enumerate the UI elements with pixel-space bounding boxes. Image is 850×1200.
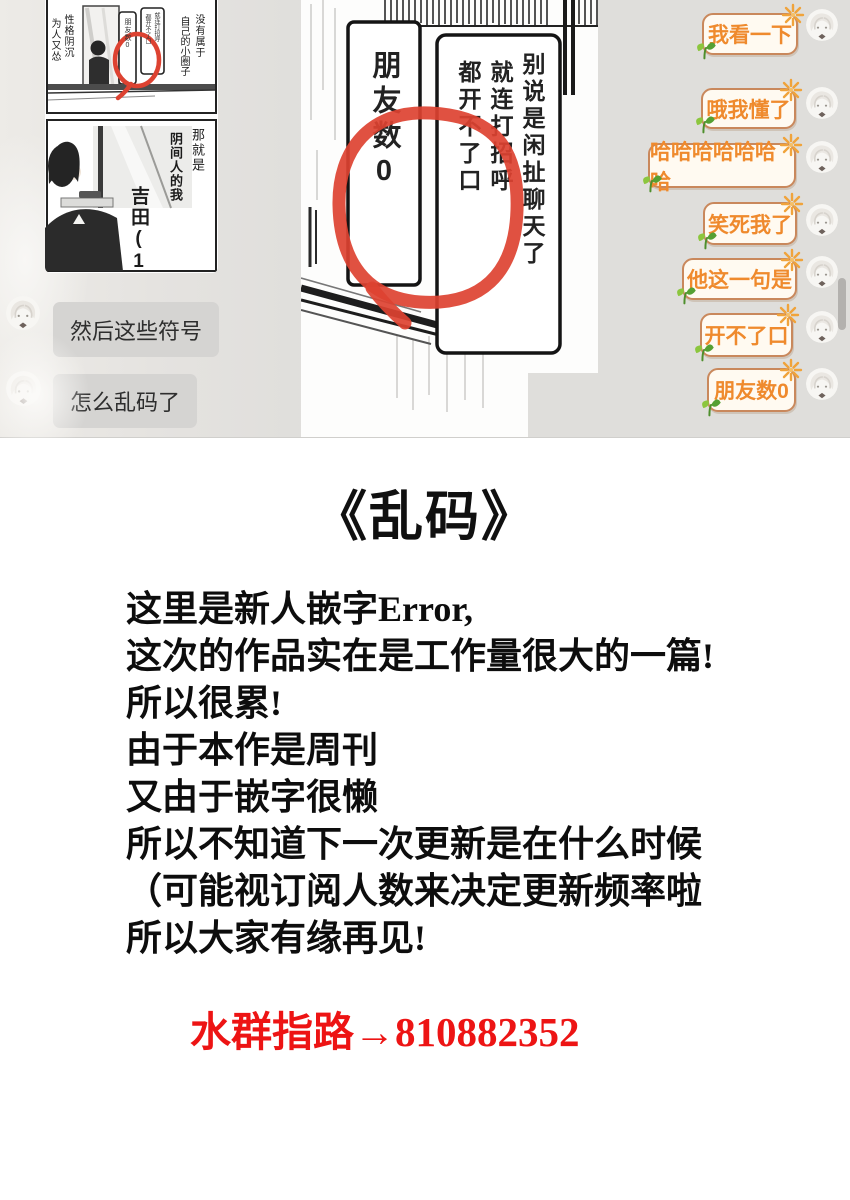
right-message-bubble[interactable]: 哈哈哈哈哈哈哈 <box>648 143 796 188</box>
credits-line: （可能视订阅人数来决定更新频率啦 <box>126 868 766 915</box>
right-avatar[interactable] <box>806 256 838 288</box>
sprout-icon <box>691 108 718 135</box>
right-message-bubble[interactable]: 哦我懂了 <box>701 88 796 129</box>
credits-line: 所以大家有缘再见! <box>126 915 766 962</box>
sparkle-icon <box>781 3 805 27</box>
thumb-p1-left-col2: 为人又怂 <box>49 18 59 62</box>
chat-area: 性格阴沉 为人又怂 没有属于 自己的小圈子 朋友数0 就连打招呼 都开不了口 那… <box>0 0 850 438</box>
thumb-p2-col2: 阴间人的我 <box>169 132 182 202</box>
thumb-p1-right-col1: 没有属于 <box>193 14 203 58</box>
thumb-p2-name: 吉田(14) <box>129 186 148 273</box>
sparkle-icon <box>780 248 804 272</box>
sparkle-icon <box>779 133 803 157</box>
credits-line: 又由于嵌字很懒 <box>126 774 766 821</box>
right-avatar[interactable] <box>806 9 838 41</box>
sprout-icon <box>672 279 699 306</box>
right-message-bubble[interactable]: 开不了口 <box>700 313 793 357</box>
sprout-icon <box>697 391 724 418</box>
right-message-bubble[interactable]: 他这一句是 <box>682 258 797 300</box>
thumb-p1-bubble-right-text1: 就连打招呼 <box>153 12 159 42</box>
right-avatar[interactable] <box>806 87 838 119</box>
left-avatar[interactable] <box>6 371 41 406</box>
manga-thumbnail-message[interactable]: 性格阴沉 为人又怂 没有属于 自己的小圈子 朋友数0 就连打招呼 都开不了口 那… <box>45 0 218 273</box>
left-avatar[interactable] <box>6 296 40 330</box>
manga-image-message[interactable]: 朋友数0 别说是闲扯聊天了 就连打招呼 都开不了口 <box>301 0 598 437</box>
sprout-icon <box>638 167 665 194</box>
right-avatar[interactable] <box>806 311 838 343</box>
thumb-p1-bubble-left-text: 朋友数0 <box>124 18 131 50</box>
credits-line: 由于本作是周刊 <box>126 727 766 774</box>
right-avatar[interactable] <box>806 141 838 173</box>
right-message-text: 他这一句是 <box>687 264 792 294</box>
credits-section: 《乱码》 这里是新人嵌字Error, 这次的作品实在是工作量很大的一篇! 所以很… <box>0 438 850 1200</box>
sparkle-icon <box>776 303 800 327</box>
sparkle-icon <box>780 192 804 216</box>
thumb-p2-col1: 那就是 <box>191 128 204 173</box>
left-message-text: 然后这些符号 <box>70 314 202 346</box>
right-message-text: 我看一下 <box>708 19 792 49</box>
thumb-p1-left-col1: 性格阴沉 <box>62 14 72 58</box>
sprout-icon <box>690 336 717 363</box>
group-number-line: 水群指路→810882352 <box>190 998 580 1058</box>
right-avatar[interactable] <box>806 368 838 400</box>
right-avatar[interactable] <box>806 204 838 236</box>
chat-scrollbar[interactable] <box>838 278 846 330</box>
left-message-text: 怎么乱码了 <box>70 385 180 417</box>
right-message-bubble[interactable]: 我看一下 <box>702 13 798 55</box>
right-message-bubble[interactable]: 朋友数0 <box>707 368 796 412</box>
credits-body: 这里是新人嵌字Error, 这次的作品实在是工作量很大的一篇! 所以很累! 由于… <box>126 586 766 962</box>
left-message-bubble[interactable]: 然后这些符号 <box>53 302 219 357</box>
credits-line: 所以很累! <box>126 680 766 727</box>
right-message-bubble[interactable]: 笑死我了 <box>703 202 797 245</box>
credits-title: 《乱码》 <box>0 472 850 551</box>
left-message-bubble[interactable]: 怎么乱码了 <box>53 374 197 428</box>
screenshot-root: 性格阴沉 为人又怂 没有属于 自己的小圈子 朋友数0 就连打招呼 都开不了口 那… <box>0 0 850 1200</box>
thumb-p1-bubble-right-text2: 都开不了口 <box>144 14 150 44</box>
right-message-text: 哈哈哈哈哈哈哈 <box>650 136 794 196</box>
right-message-text: 朋友数0 <box>714 375 789 405</box>
credits-line: 所以不知道下一次更新是在什么时候 <box>126 821 766 868</box>
sprout-icon <box>692 34 719 61</box>
sprout-icon <box>693 224 720 251</box>
credits-line: 这里是新人嵌字Error, <box>126 586 766 633</box>
sparkle-icon <box>779 358 803 382</box>
red-annotation-circle <box>301 0 598 437</box>
right-message-text: 哦我懂了 <box>707 94 791 124</box>
thumb-p1-right-col2: 自己的小圈子 <box>178 16 188 76</box>
credits-line: 这次的作品实在是工作量很大的一篇! <box>126 633 766 680</box>
sparkle-icon <box>779 78 803 102</box>
